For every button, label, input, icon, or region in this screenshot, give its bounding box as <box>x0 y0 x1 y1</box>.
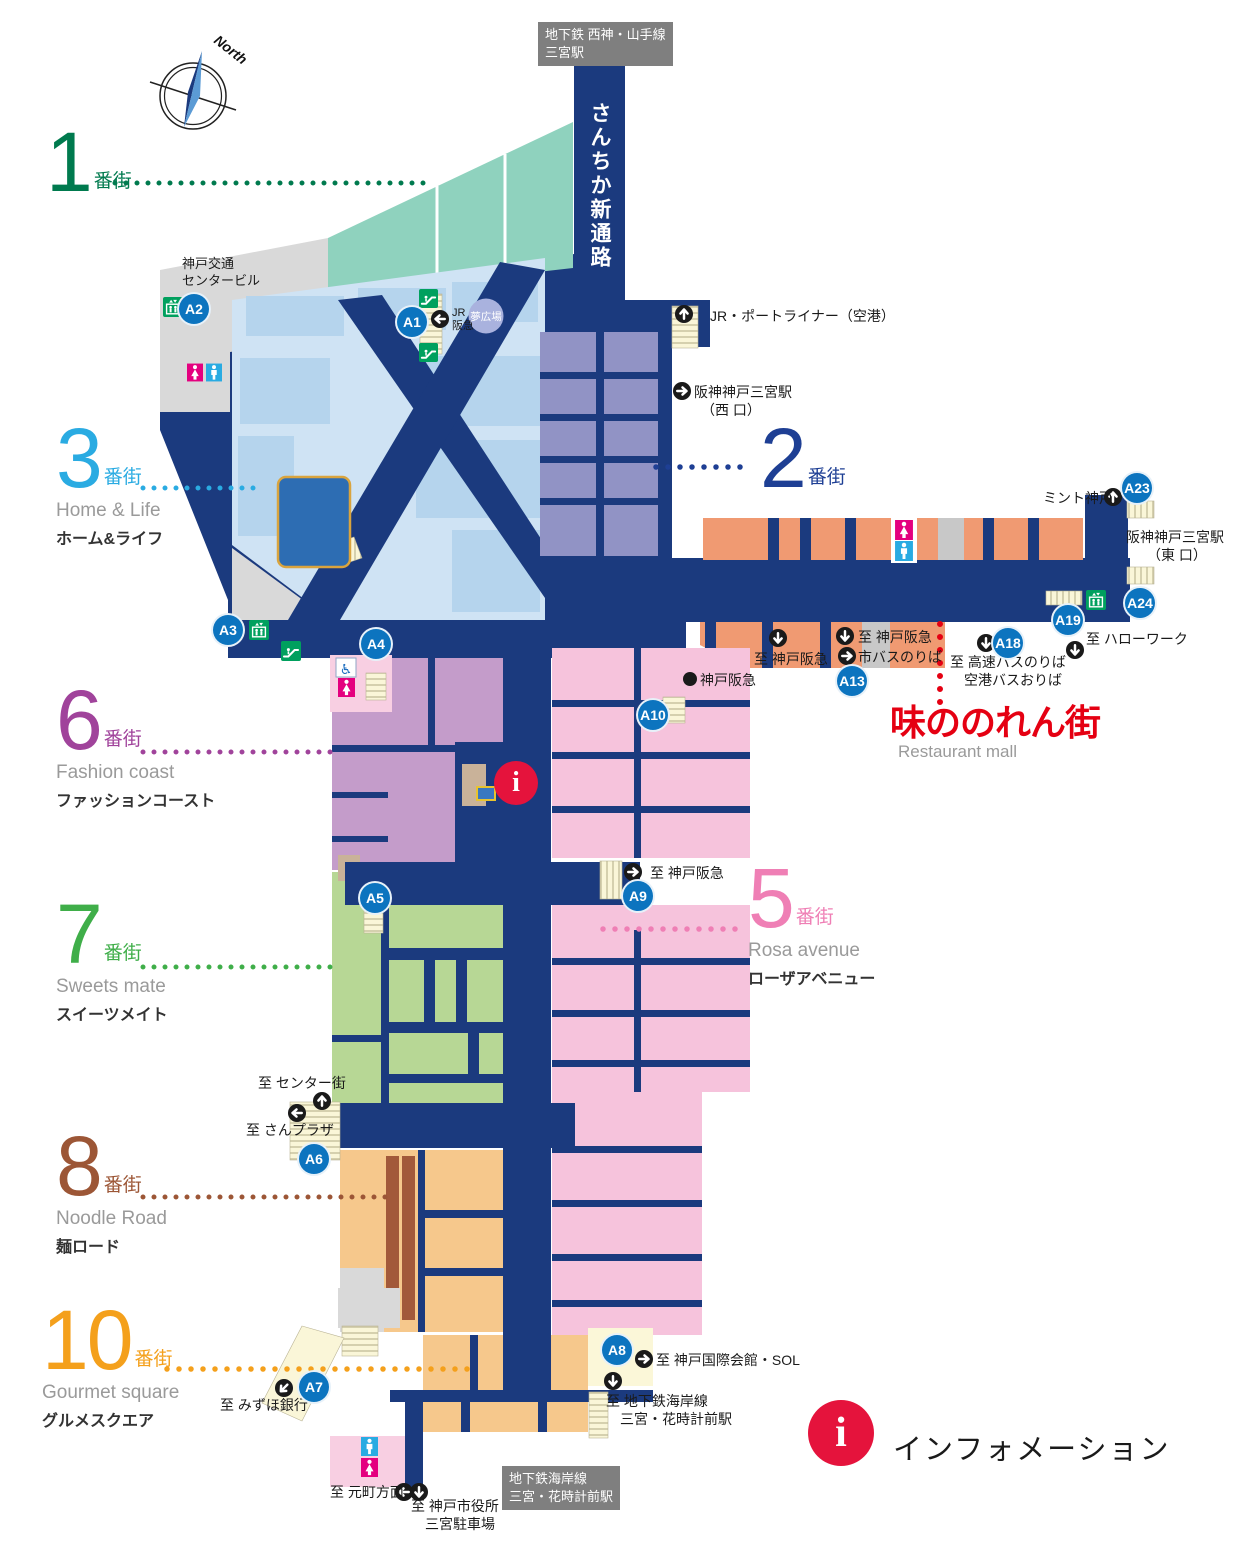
arrow-up-icon <box>675 305 693 323</box>
exit-badge-a13: A13 <box>835 664 869 698</box>
svg-text:♿: ♿ <box>340 661 353 677</box>
female-toilet-icon <box>338 678 355 697</box>
district-8-label: 8番街 Noodle Road 麺ロード <box>56 1132 167 1257</box>
restaurant-mall-title: 味ののれん街 <box>890 694 1100 746</box>
male-toilet-icon <box>361 1437 378 1456</box>
arrow-left-icon <box>288 1104 306 1122</box>
sanchika-new-corridor-label: さんちか新通路 <box>584 102 614 270</box>
exit-badge-a23: A23 <box>1120 471 1154 505</box>
compass-rose: North <box>150 32 250 129</box>
arrow-down-icon <box>836 627 854 645</box>
exit-badge-a10: A10 <box>636 698 670 732</box>
to-hankyu-center-label: 至 神戸阪急 <box>858 628 932 646</box>
arrow-right-icon <box>673 382 691 400</box>
arrow-up-icon <box>313 1092 331 1110</box>
exit-badge-a6: A6 <box>297 1142 331 1176</box>
exit-badge-a1: A1 <box>395 305 429 339</box>
city-hall-label: 至 神戸市役所 三宮駐車場 <box>411 1497 499 1533</box>
station-box-kaigan-line: 地下鉄海岸線 三宮・花時計前駅 <box>502 1466 620 1510</box>
female-toilet-icon <box>895 520 913 540</box>
exit-badge-a19: A19 <box>1051 603 1085 637</box>
sunken-garden-pond <box>278 477 350 567</box>
center-gai-label: 至 センター街 <box>258 1074 346 1092</box>
city-bus-label: 市バスのりば <box>858 648 942 666</box>
elevator-icon <box>249 620 269 640</box>
exit-badge-a18: A18 <box>991 626 1025 660</box>
yume-plaza-label: 夢広場 <box>470 310 502 323</box>
arrow-right-icon <box>838 647 856 665</box>
escalator-icon <box>419 343 438 362</box>
information-legend-label: インフォメーション <box>893 1426 1171 1468</box>
wheelchair-icon: ♿ <box>336 658 356 677</box>
exit-badge-a9: A9 <box>621 879 655 913</box>
district-5-label: 5番街 Rosa avenue ローザアベニュー <box>748 864 875 989</box>
arrow-left-icon <box>431 310 449 328</box>
escalator-icon <box>419 289 438 308</box>
kokusai-label: 至 神戸国際会館・SOL <box>656 1351 800 1369</box>
exit-badge-a8: A8 <box>600 1333 634 1367</box>
arrow-right-icon <box>635 1350 653 1368</box>
elevator-icon <box>1086 590 1106 610</box>
district-10-label: 10番街 Gourmet square グルメスクエア <box>42 1306 179 1431</box>
arrow-down-icon <box>604 1372 622 1390</box>
mizuho-label: 至 みずほ銀行 <box>220 1396 308 1414</box>
district-1-label: 1番街 <box>46 128 132 197</box>
exit-badge-a5: A5 <box>358 881 392 915</box>
exit-badge-a2: A2 <box>177 292 211 326</box>
arrow-down-icon <box>1066 641 1084 659</box>
compass-north-label: North <box>211 32 250 68</box>
district-7-label: 7番街 Sweets mate スイーツメイト <box>56 900 168 1025</box>
information-icon: i <box>494 761 538 805</box>
station-box-subway-sannomiya: 地下鉄 西神・山手線 三宮駅 <box>538 22 673 66</box>
region-district2-slate <box>540 332 658 556</box>
female-toilet-icon <box>187 364 203 382</box>
jr-portliner-label: JR・ポートライナー（空港） <box>710 307 895 325</box>
male-toilet-icon <box>206 364 222 382</box>
mint-kobe-label: ミント神戸 <box>1043 489 1113 507</box>
district-3-label: 3番街 Home & Life ホーム&ライフ <box>56 424 163 549</box>
exit-badge-a24: A24 <box>1123 586 1157 620</box>
exit-badge-a4: A4 <box>359 627 393 661</box>
hankyu-bullet-icon <box>683 672 697 686</box>
to-hankyu-west-label: 至 神戸阪急 <box>754 650 828 668</box>
region-district6-fashion <box>330 655 505 870</box>
jr-hankyu-label: JR 阪急 <box>452 307 474 332</box>
kotsu-center-label: 神戸交通 センタービル <box>182 256 260 290</box>
motomachi-label: 至 元町方面 <box>330 1483 404 1501</box>
hanshin-east-label: 阪神神戸三宮駅 （東 口） <box>1126 528 1224 564</box>
male-toilet-icon <box>895 541 913 561</box>
district-6-label: 6番街 Fashion coast ファッションコースト <box>56 686 215 811</box>
hankyu-store-label: 神戸阪急 <box>700 671 756 689</box>
female-toilet-icon <box>361 1458 378 1477</box>
escalator-icon <box>281 641 301 661</box>
san-plaza-label: 至 さんプラザ <box>246 1121 334 1139</box>
info-counter-desk <box>477 787 495 800</box>
santica-floor-map: 夢広場 ♿ <box>0 0 1250 1550</box>
exit-badge-a7: A7 <box>297 1370 331 1404</box>
kaigan-exit-label: 至 地下鉄海岸線 三宮・花時計前駅 <box>606 1392 732 1428</box>
exit-badge-a3: A3 <box>211 613 245 647</box>
information-legend-icon: i <box>808 1400 874 1466</box>
restaurant-mall-subtitle: Restaurant mall <box>898 742 1017 762</box>
to-hankyu-east-label: 至 神戸阪急 <box>650 864 724 882</box>
arrow-down-icon <box>769 629 787 647</box>
hello-work-label: 至 ハローワーク <box>1086 630 1188 648</box>
region-district5-rosa <box>552 648 750 1335</box>
district-2-label: 2番街 <box>760 424 846 493</box>
